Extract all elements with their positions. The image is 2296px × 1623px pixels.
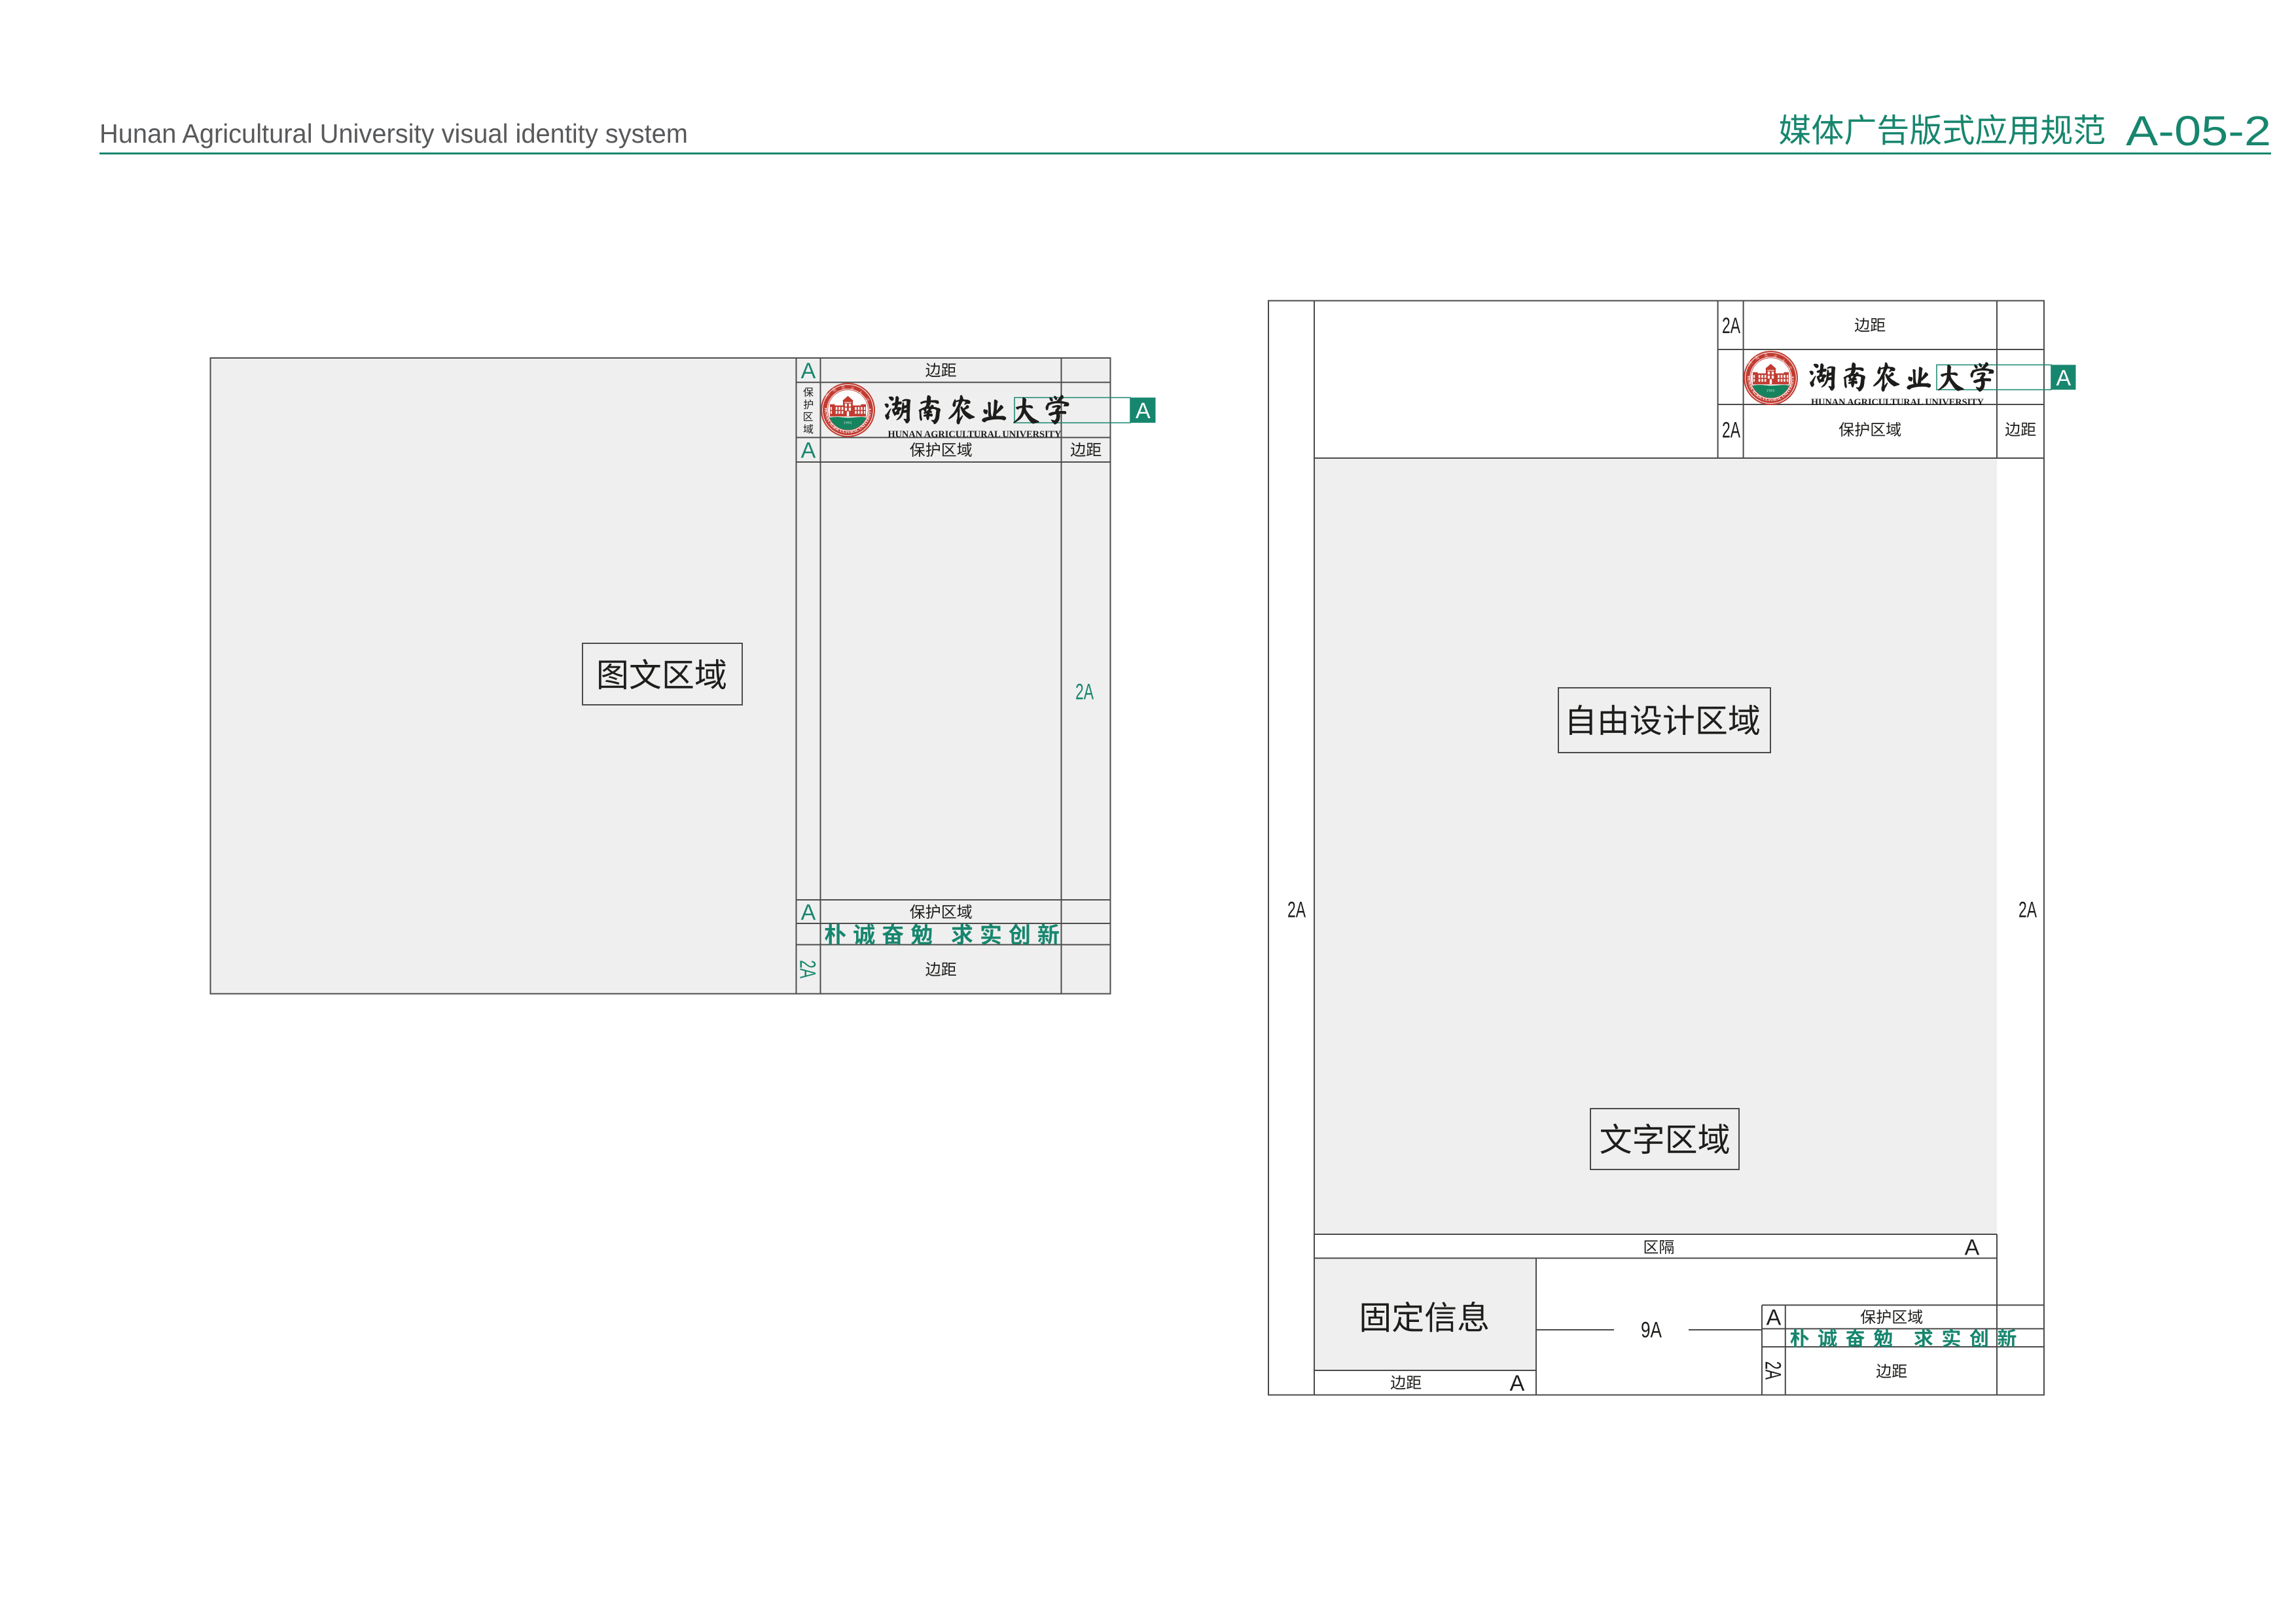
svg-text:2A: 2A <box>2018 897 2037 922</box>
svg-text:HUNAN AGRICULTURAL UNIVERSITY: HUNAN AGRICULTURAL UNIVERSITY <box>1811 397 1984 408</box>
svg-text:2A: 2A <box>1761 1361 1785 1380</box>
svg-text:A: A <box>801 900 816 925</box>
svg-text:A: A <box>1965 1235 1980 1260</box>
svg-text:9A: 9A <box>1641 1317 1662 1342</box>
svg-text:A: A <box>1510 1371 1525 1396</box>
svg-text:Hunan Agricultural University: Hunan Agricultural University visual ide… <box>99 118 688 149</box>
svg-text:A: A <box>2056 366 2071 391</box>
svg-text:2A: 2A <box>1722 418 1740 442</box>
svg-text:2A: 2A <box>1722 313 1740 338</box>
svg-text:A-05-2: A-05-2 <box>2126 107 2271 154</box>
svg-text:2A: 2A <box>1287 897 1306 922</box>
svg-text:A: A <box>801 359 816 383</box>
svg-text:A: A <box>1136 399 1151 423</box>
svg-text:HUNAN AGRICULTURAL UNIVERSITY: HUNAN AGRICULTURAL UNIVERSITY <box>888 429 1062 440</box>
svg-text:A: A <box>1767 1305 1782 1330</box>
svg-text:A: A <box>801 438 816 463</box>
svg-text:2A: 2A <box>795 960 820 978</box>
svg-text:2A: 2A <box>1075 679 1094 704</box>
